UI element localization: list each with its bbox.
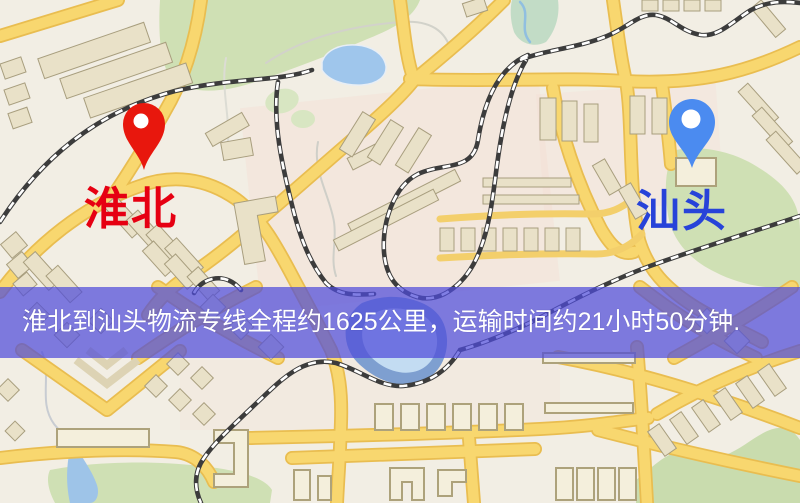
route-info-banner: 淮北到汕头物流专线全程约1625公里，运输时间约21小时50分钟. (0, 287, 800, 358)
origin-pin-icon[interactable] (118, 95, 170, 175)
destination-label: 汕头 (636, 175, 728, 239)
route-info-text: 淮北到汕头物流专线全程约1625公里，运输时间约21小时50分钟. (22, 308, 740, 336)
destination-pin-icon[interactable] (664, 94, 720, 176)
logistics-route-map: 淮北 汕头 淮北到汕头物流专线全程约1625公里，运输时间约21小时50分钟. (0, 0, 800, 503)
map-background (0, 0, 800, 503)
origin-label: 淮北 (84, 172, 178, 237)
